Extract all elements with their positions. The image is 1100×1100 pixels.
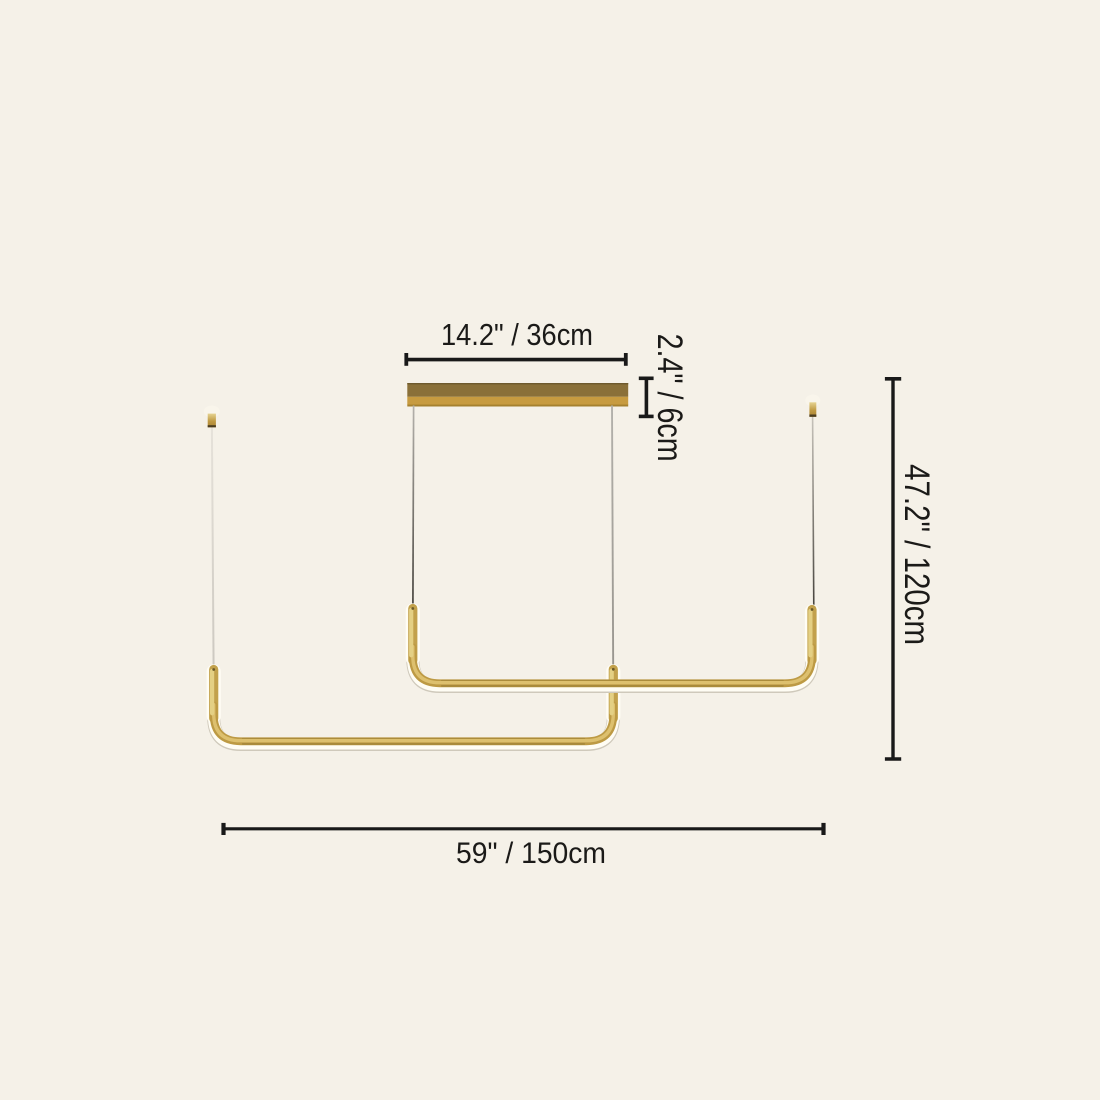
svg-text:47.2" / 120cm: 47.2" / 120cm [897, 464, 936, 645]
svg-text:14.2" / 36cm: 14.2" / 36cm [441, 317, 593, 352]
svg-text:2.4" / 6cm: 2.4" / 6cm [650, 334, 689, 462]
svg-text:59" / 150cm: 59" / 150cm [456, 837, 606, 870]
